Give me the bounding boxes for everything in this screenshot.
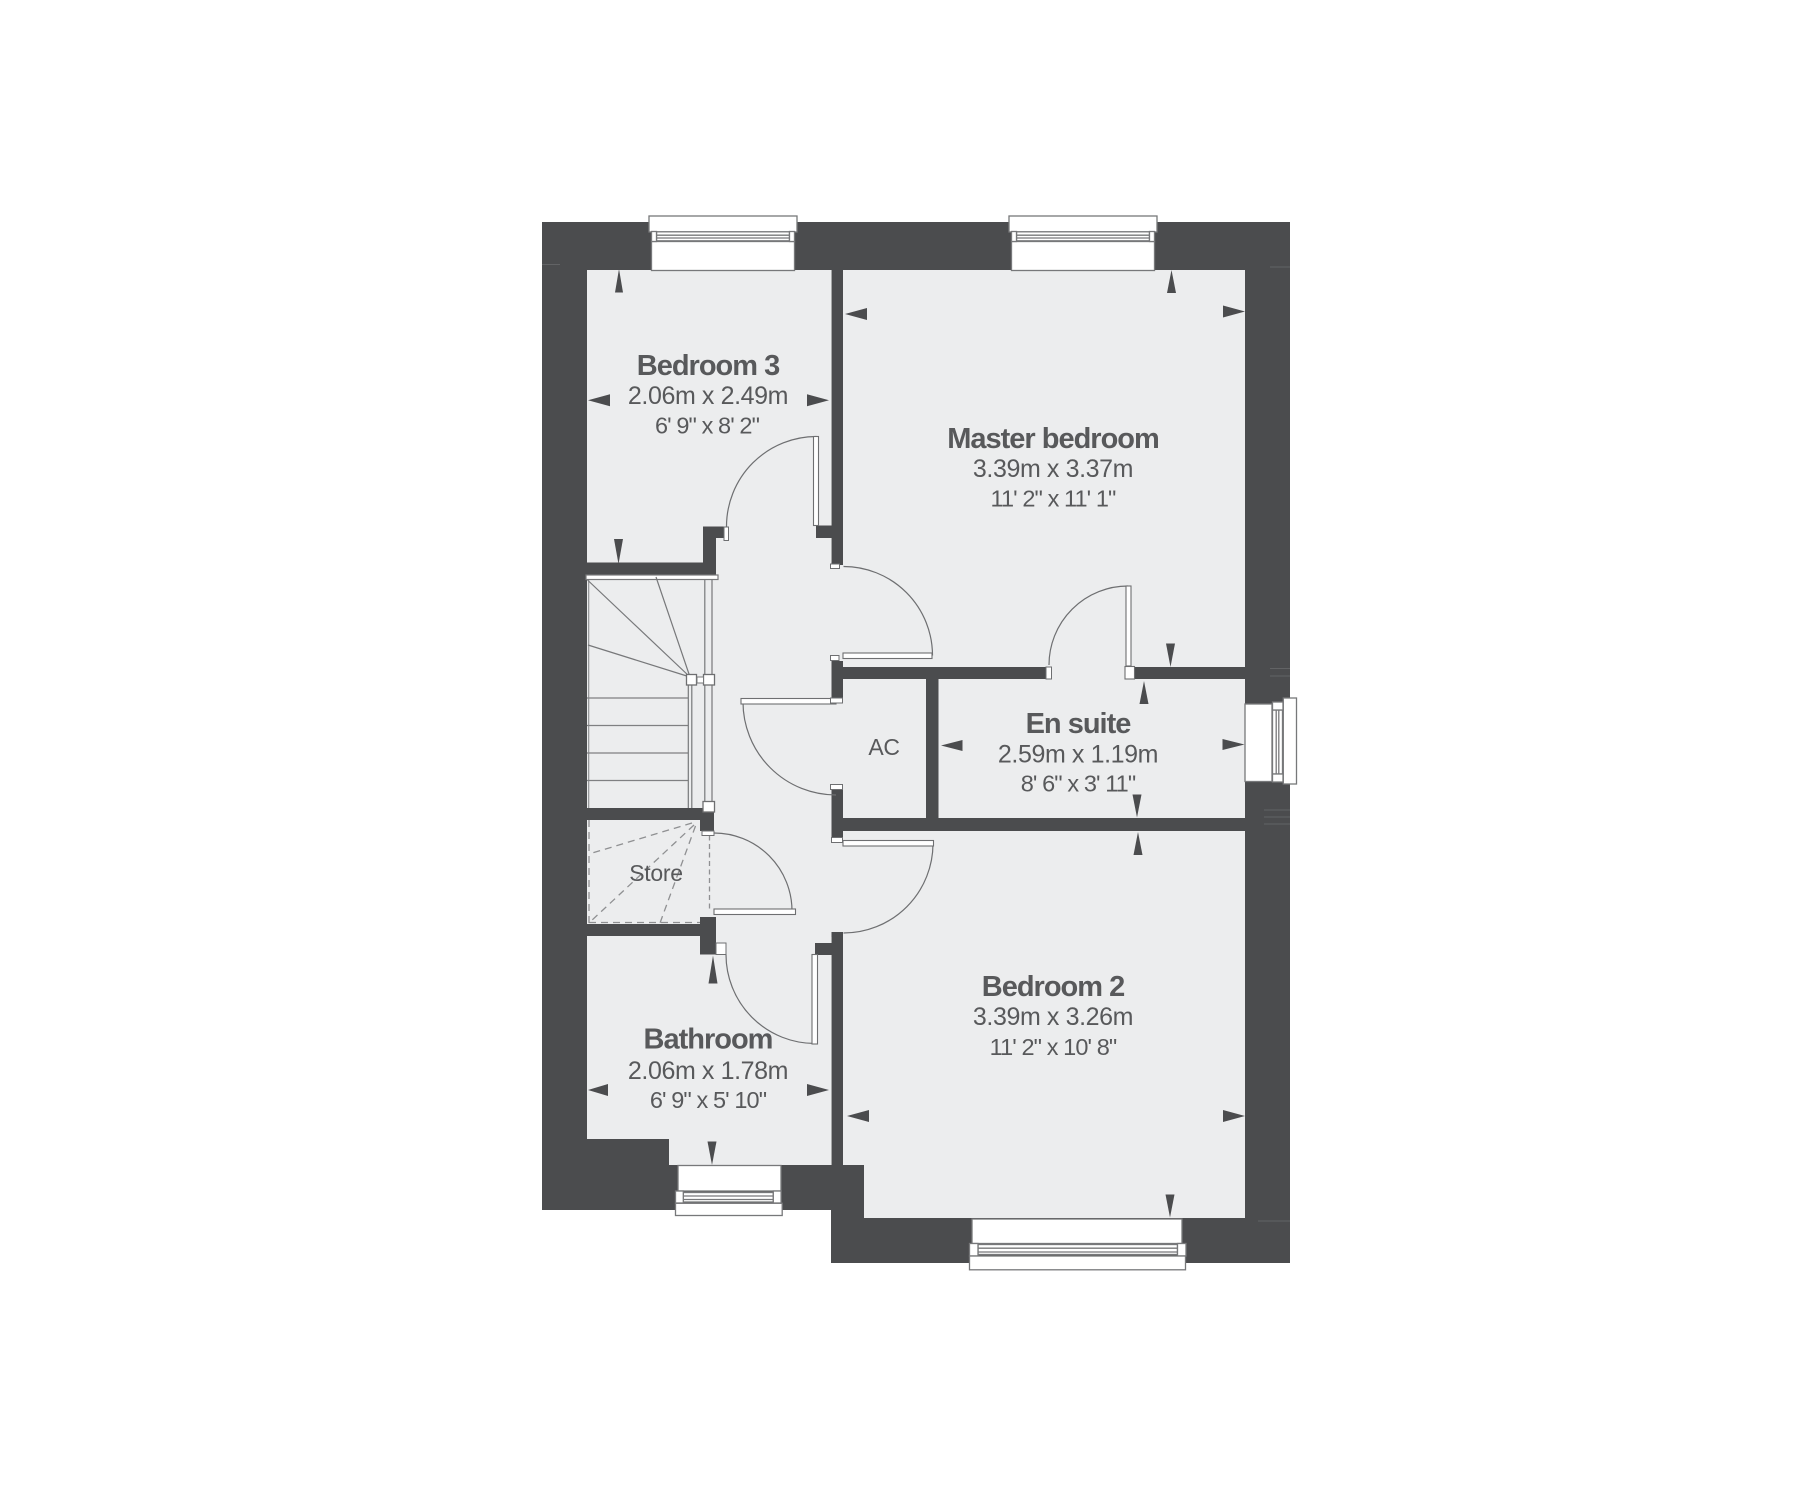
svg-text:3.39m x 3.37m: 3.39m x 3.37m xyxy=(973,455,1133,483)
svg-text:Bedroom 3: Bedroom 3 xyxy=(637,350,780,382)
svg-text:Bedroom 2: Bedroom 2 xyxy=(982,971,1124,1003)
svg-text:Store: Store xyxy=(629,860,682,886)
svg-text:6' 9" x 5' 10": 6' 9" x 5' 10" xyxy=(650,1087,767,1113)
svg-text:8' 6" x 3' 11": 8' 6" x 3' 11" xyxy=(1021,771,1136,797)
svg-text:Bathroom: Bathroom xyxy=(644,1024,773,1056)
svg-text:2.06m x 1.78m: 2.06m x 1.78m xyxy=(628,1057,788,1085)
svg-text:2.06m x 2.49m: 2.06m x 2.49m xyxy=(628,382,788,410)
svg-text:6' 9" x 8' 2": 6' 9" x 8' 2" xyxy=(655,413,760,439)
svg-text:En suite: En suite xyxy=(1026,708,1132,740)
svg-text:Master bedroom: Master bedroom xyxy=(947,423,1159,455)
svg-text:2.59m x 1.19m: 2.59m x 1.19m xyxy=(998,741,1158,769)
svg-text:11' 2" x 11' 1": 11' 2" x 11' 1" xyxy=(991,486,1117,512)
svg-text:11' 2" x 10' 8": 11' 2" x 10' 8" xyxy=(990,1034,1117,1060)
svg-text:AC: AC xyxy=(868,734,899,760)
svg-text:3.39m x 3.26m: 3.39m x 3.26m xyxy=(973,1003,1133,1031)
